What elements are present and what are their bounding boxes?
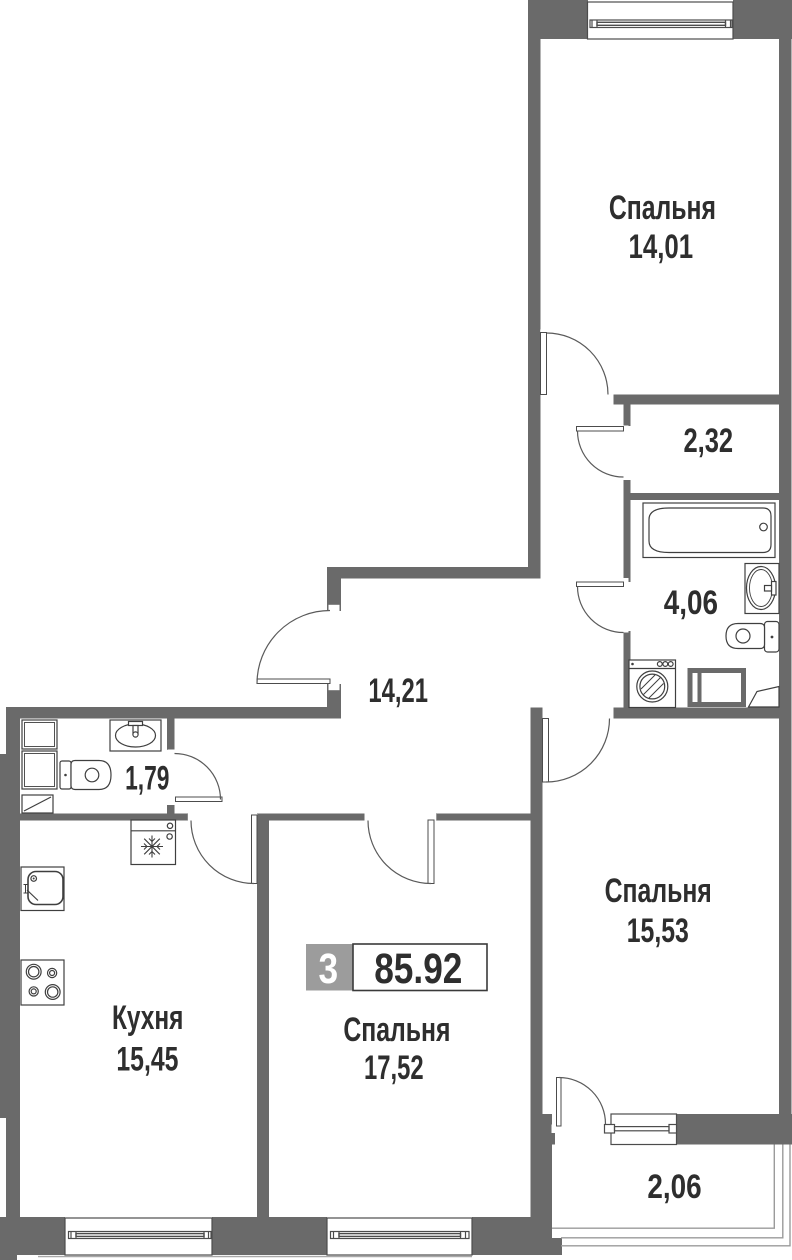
svg-text:85.92: 85.92 xyxy=(374,945,462,993)
svg-text:17,52: 17,52 xyxy=(364,1049,424,1087)
svg-text:14,01: 14,01 xyxy=(628,229,693,266)
svg-text:Спальня: Спальня xyxy=(605,872,712,910)
svg-text:2,06: 2,06 xyxy=(647,1167,701,1205)
svg-text:Спальня: Спальня xyxy=(609,189,716,227)
svg-text:15,45: 15,45 xyxy=(116,1041,178,1079)
svg-text:4,06: 4,06 xyxy=(664,583,718,621)
svg-text:1,79: 1,79 xyxy=(125,760,169,798)
svg-text:14,21: 14,21 xyxy=(368,672,428,710)
svg-text:3: 3 xyxy=(318,945,338,993)
svg-text:15,53: 15,53 xyxy=(627,912,689,950)
svg-text:2,32: 2,32 xyxy=(683,423,733,460)
svg-text:Кухня: Кухня xyxy=(112,999,184,1037)
svg-text:Спальня: Спальня xyxy=(343,1011,450,1049)
